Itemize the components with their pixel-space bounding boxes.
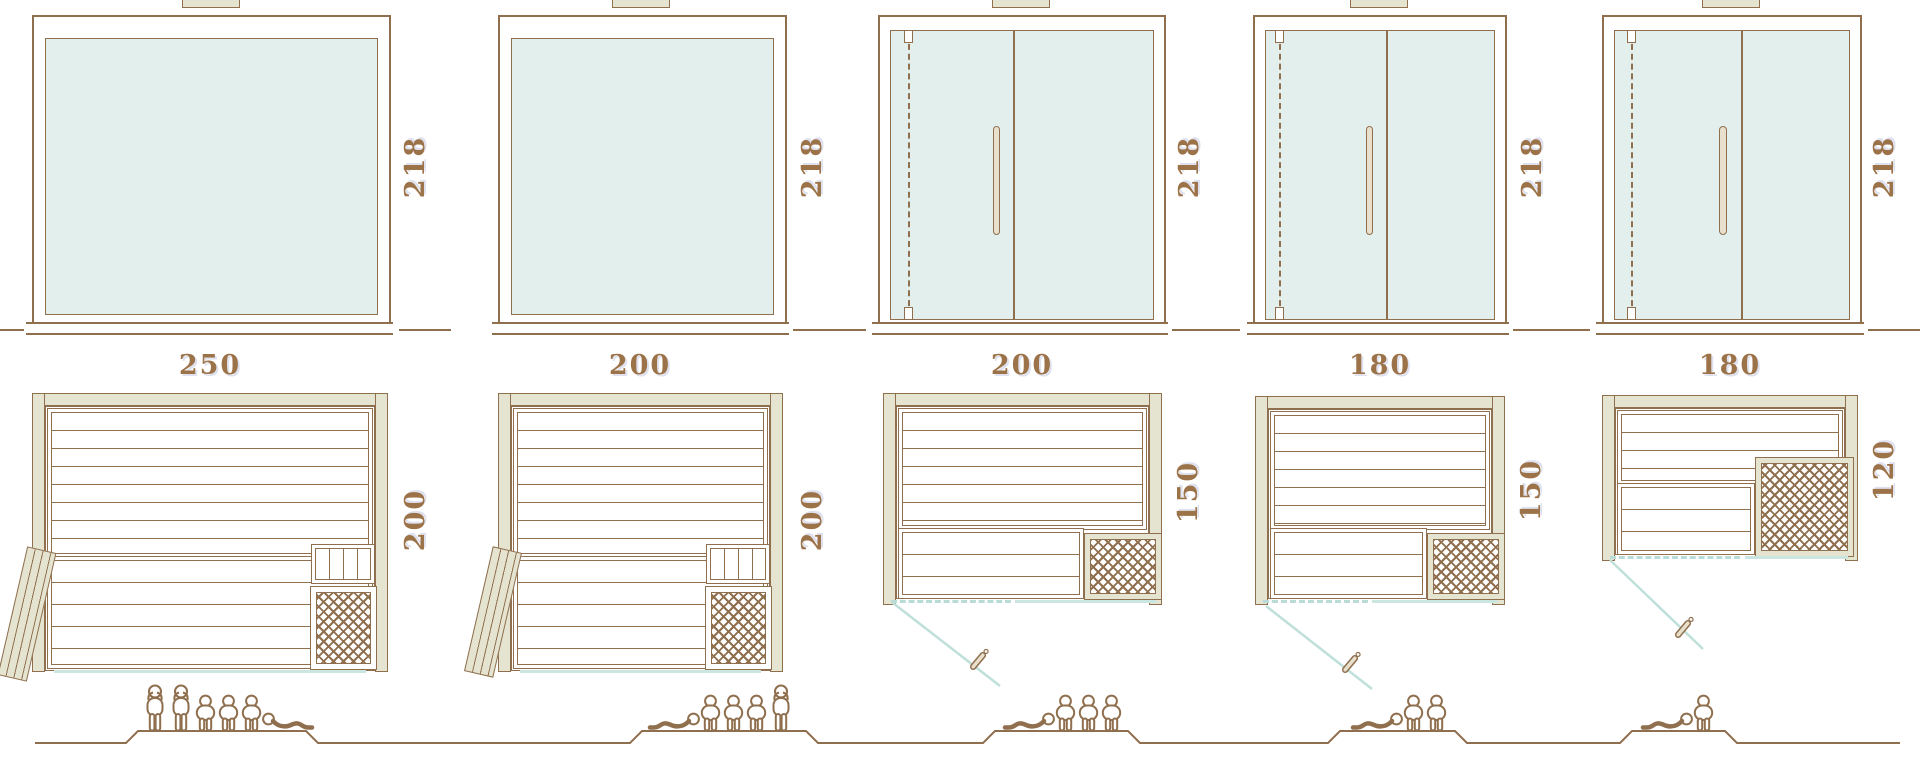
- lower-bench: [898, 528, 1084, 599]
- hinge-icon: [1275, 30, 1284, 43]
- ground-line: [1172, 329, 1240, 331]
- dimension-label-height: 218: [1517, 119, 1547, 215]
- roof-vent: [1350, 0, 1408, 8]
- glass-door-front: [1614, 30, 1850, 320]
- glass-front-line: [1015, 600, 1156, 603]
- wall-top: [32, 393, 388, 406]
- sauna-floor-plan-2: [498, 393, 783, 675]
- glass-front-line: [1372, 600, 1497, 603]
- heater: [1427, 533, 1505, 600]
- roof-vent: [992, 0, 1050, 8]
- dimension-label-depth: 150: [1173, 444, 1203, 540]
- sill: [872, 322, 1168, 335]
- capacity-group-2: [645, 683, 845, 731]
- sauna-elevation-3: [878, 15, 1166, 325]
- sauna-floor-plan-4: [1255, 396, 1505, 607]
- open-door-dashed-line: [891, 600, 1011, 603]
- upper-bench: [47, 408, 373, 558]
- dimension-label-height: 218: [797, 119, 827, 215]
- roof-vent: [182, 0, 240, 8]
- heater: [1084, 533, 1162, 600]
- bench-end-section: [706, 544, 770, 584]
- dimension-label-width: 200: [952, 350, 1092, 381]
- wall-top: [1255, 396, 1505, 409]
- dimension-label-depth: 120: [1869, 422, 1899, 518]
- dimension-label-height: 218: [400, 119, 430, 215]
- door-handle-icon: [970, 616, 1695, 673]
- door-edge-line: [1013, 31, 1015, 319]
- hinge-axis-dashed-line: [908, 34, 910, 316]
- capacity-group-4: [1348, 683, 1548, 731]
- wall-top: [883, 393, 1162, 406]
- capacity-ground-line: [35, 731, 1900, 743]
- sill: [1247, 322, 1509, 335]
- dimension-label-depth: 150: [1516, 442, 1546, 538]
- open-door-dashed-line: [1263, 600, 1368, 603]
- sauna-floor-plan-3: [883, 393, 1162, 607]
- wall-top: [1602, 395, 1858, 408]
- roof-vent: [612, 0, 670, 8]
- upper-bench: [513, 408, 768, 558]
- glass-front-line: [54, 670, 366, 673]
- ground-line: [399, 329, 451, 331]
- door-handle: [993, 126, 1000, 235]
- dimension-label-width: 250: [140, 350, 280, 381]
- wall-left: [1255, 396, 1268, 605]
- wall-top: [498, 393, 783, 406]
- ground-line: [1868, 329, 1920, 331]
- sauna-elevation-4: [1253, 15, 1507, 325]
- hinge-icon: [1275, 307, 1284, 320]
- door-edge-line: [1741, 31, 1743, 319]
- glass-front-line: [520, 670, 761, 673]
- glass-door-front: [890, 30, 1154, 320]
- sill: [26, 322, 393, 335]
- hinge-icon: [1627, 30, 1636, 43]
- heater: [1755, 457, 1854, 557]
- door-edge-line: [1386, 31, 1388, 319]
- wall-left: [883, 393, 896, 605]
- hinge-icon: [904, 30, 913, 43]
- heater: [310, 586, 377, 670]
- dimension-label-depth: 200: [400, 472, 430, 568]
- lower-bench: [1270, 528, 1427, 599]
- sauna-elevation-1: [32, 15, 391, 326]
- hinge-icon: [904, 307, 913, 320]
- upper-bench: [898, 408, 1147, 530]
- hinge-axis-dashed-line: [1631, 34, 1633, 316]
- sauna-elevation-2: [498, 15, 787, 326]
- ground-line: [793, 329, 866, 331]
- ground-line: [0, 329, 24, 331]
- glass-panel: [45, 38, 378, 315]
- sill: [492, 322, 789, 335]
- dimension-label-width: 180: [1310, 350, 1450, 381]
- sauna-floor-plan-5: [1602, 395, 1858, 563]
- bench-end-section: [311, 544, 375, 584]
- glass-front-line: [1745, 556, 1848, 559]
- ground-line: [1513, 329, 1590, 331]
- dimension-label-depth: 200: [797, 472, 827, 568]
- door-handle: [1719, 126, 1727, 235]
- open-door-dashed-line: [1610, 556, 1740, 559]
- lower-bench: [1617, 483, 1755, 555]
- dimension-label-height: 218: [1869, 119, 1899, 215]
- heater: [705, 586, 772, 670]
- hinge-axis-dashed-line: [1279, 34, 1281, 316]
- glass-door-front: [1265, 30, 1495, 320]
- dimension-label-width: 180: [1660, 350, 1800, 381]
- sauna-floor-plan-1: [32, 393, 388, 675]
- wall-left: [1602, 395, 1615, 561]
- glass-panel: [511, 38, 774, 315]
- dimension-label-width: 200: [570, 350, 710, 381]
- capacity-group-5: [1638, 683, 1838, 731]
- door-handle: [1366, 126, 1373, 235]
- sill: [1596, 322, 1864, 335]
- upper-bench: [1270, 411, 1490, 530]
- sauna-elevation-5: [1602, 15, 1862, 325]
- capacity-group-3: [1000, 683, 1200, 731]
- capacity-group-1: [140, 683, 340, 731]
- dimension-label-height: 218: [1174, 119, 1204, 215]
- roof-vent: [1702, 0, 1760, 8]
- sauna-comparison-diagram: 218 218 218 218 218 250 200 200 180 180: [0, 0, 1920, 770]
- hinge-icon: [1627, 307, 1636, 320]
